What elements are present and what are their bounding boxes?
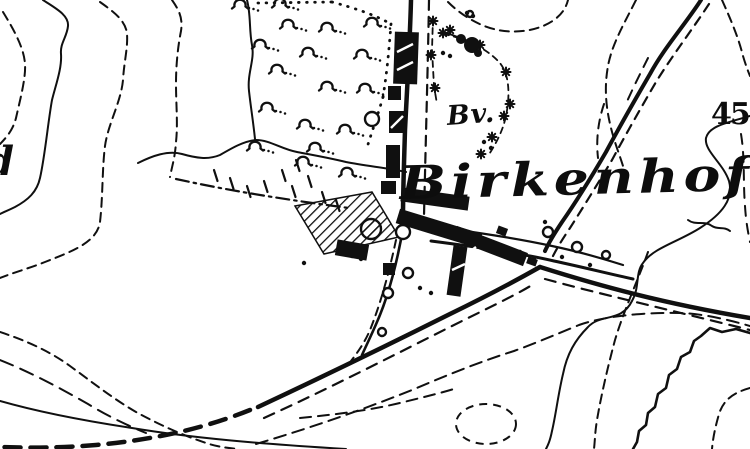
place-name-label: Birkenhof <box>399 151 750 206</box>
tree-clump <box>474 49 482 57</box>
deciduous-tree-symbol <box>247 142 263 151</box>
deciduous-tree-symbol <box>337 125 353 134</box>
deciduous-tree-symbol <box>357 84 373 93</box>
deciduous-tree-symbol <box>269 65 285 74</box>
building-footprint <box>381 181 396 194</box>
round-symbol <box>383 288 393 298</box>
clipped-label-fragment-left: d <box>0 142 14 182</box>
round-symbol <box>396 225 410 239</box>
deciduous-tree-symbol <box>259 103 275 112</box>
deciduous-tree-symbol <box>307 143 323 152</box>
hatched-round-structure <box>361 219 381 239</box>
deciduous-tree-symbol <box>297 120 313 129</box>
round-symbol <box>602 251 610 259</box>
deciduous-tree-symbol <box>232 0 248 9</box>
map-abbreviation-label: Bv. <box>446 100 496 130</box>
tree-clump <box>456 34 466 44</box>
deciduous-tree-symbol <box>339 168 355 177</box>
deciduous-tree-symbol <box>272 0 288 8</box>
building-footprint <box>447 245 468 296</box>
orchard-trees <box>232 0 391 180</box>
closed-depression-contour <box>456 404 516 444</box>
round-symbol <box>572 242 582 252</box>
deciduous-tree-symbol <box>364 18 380 27</box>
building-footprint <box>386 145 400 178</box>
clipped-number-label-right: 45 <box>711 100 749 130</box>
deciduous-tree-symbol <box>300 48 316 57</box>
topographic-map <box>0 0 750 449</box>
round-symbol <box>365 112 379 126</box>
deciduous-tree-symbol <box>354 50 370 59</box>
deciduous-tree-symbol <box>280 20 296 29</box>
map-image: Birkenhof Bv. d 45 <box>0 0 750 449</box>
deciduous-tree-symbol <box>252 40 268 49</box>
round-symbol <box>403 268 413 278</box>
round-symbol <box>378 328 386 336</box>
round-symbol <box>543 227 553 237</box>
building-footprint <box>393 32 419 85</box>
deciduous-tree-symbol <box>319 23 335 32</box>
building-footprint <box>383 263 395 275</box>
deciduous-tree-symbol <box>319 82 335 91</box>
building-footprint <box>388 86 401 100</box>
